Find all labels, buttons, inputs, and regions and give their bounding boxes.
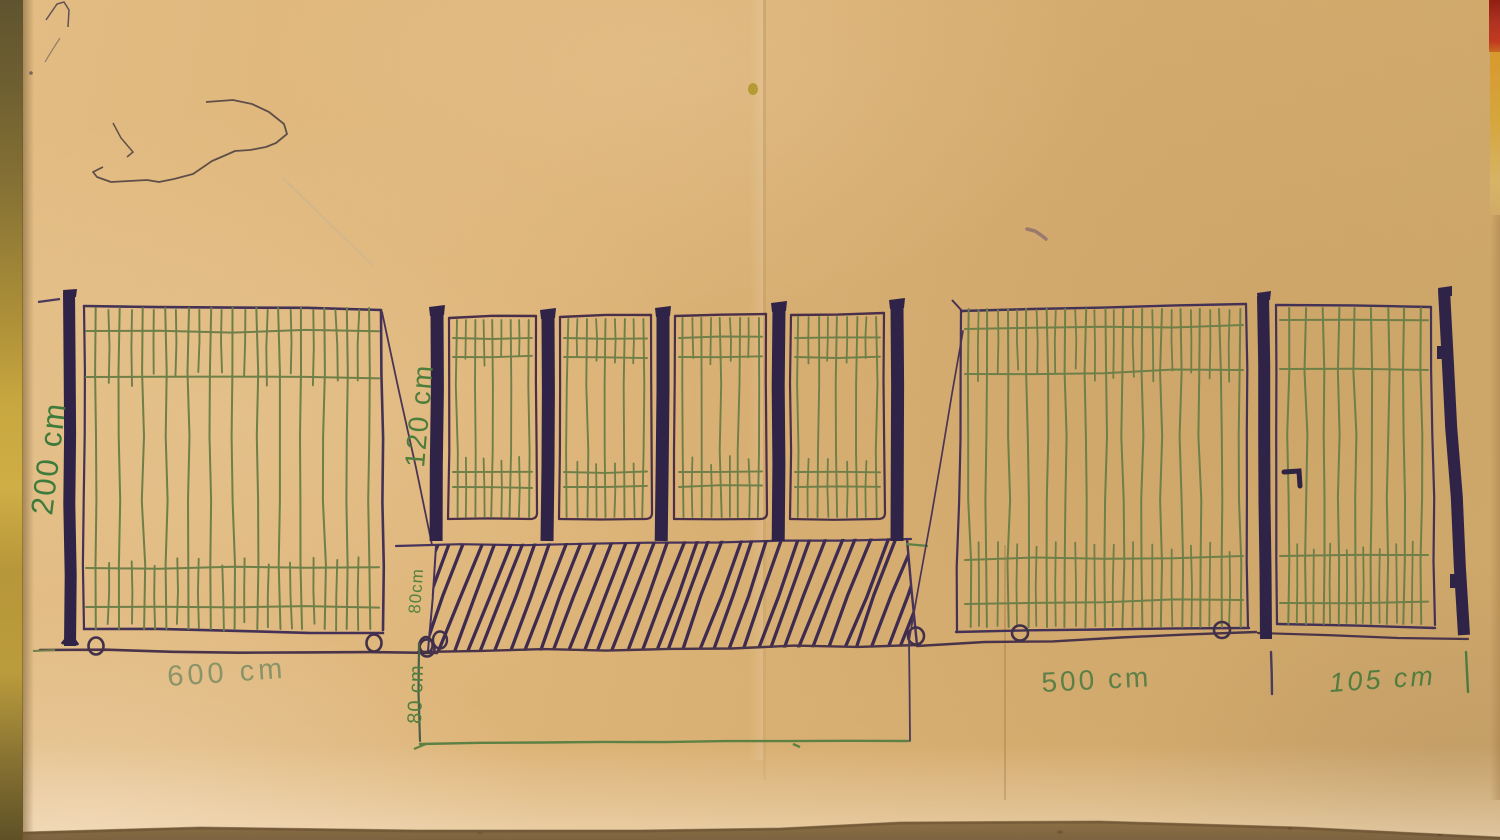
svg-text:600 cm: 600 cm [166,653,287,693]
svg-text:80cm: 80cm [405,567,427,614]
svg-text:80 cm: 80 cm [404,664,428,724]
svg-text:500 cm: 500 cm [1041,661,1152,698]
svg-text:105 cm: 105 cm [1328,661,1436,698]
